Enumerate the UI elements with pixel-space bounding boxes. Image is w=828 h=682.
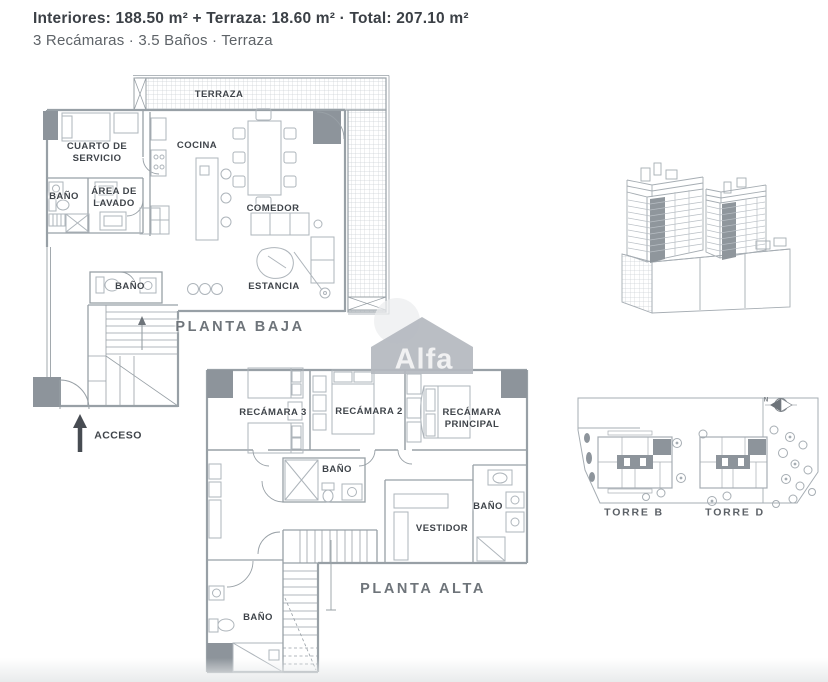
room-label-recamara2: RECÁMARA 2 bbox=[335, 406, 402, 418]
towers-illustration bbox=[622, 163, 790, 313]
north-compass-icon bbox=[765, 399, 797, 412]
torre-b-label: TORRE B bbox=[604, 506, 664, 519]
room-label-bano-powder: BAÑO bbox=[115, 281, 145, 293]
rec2-furniture bbox=[313, 370, 374, 434]
north-label: N bbox=[764, 397, 768, 405]
site-plan bbox=[578, 398, 818, 508]
planta-alta-title: PLANTA ALTA bbox=[360, 580, 486, 598]
floorplan-sheet: Interiores: 188.50 m² + Terraza: 18.60 m… bbox=[0, 0, 828, 682]
pa-stairs bbox=[283, 530, 377, 672]
room-label-bano-lower: BAÑO bbox=[243, 612, 273, 624]
acceso-label: ACCESO bbox=[94, 429, 142, 442]
room-label-cocina: COCINA bbox=[177, 140, 217, 152]
shrubs bbox=[584, 433, 595, 482]
tower-right bbox=[706, 178, 766, 260]
room-label-vestidor: VESTIDOR bbox=[416, 523, 468, 535]
pb-stairs bbox=[88, 305, 178, 406]
room-label-comedor: COMEDOR bbox=[247, 203, 300, 215]
room-label-bano-master: BAÑO bbox=[473, 501, 503, 513]
torre-d-footprint bbox=[700, 437, 767, 488]
planta-baja-title: PLANTA BAJA bbox=[175, 318, 304, 336]
room-label-bano-mid: BAÑO bbox=[322, 464, 352, 476]
master-bath-fixtures bbox=[477, 470, 524, 561]
dining-furniture bbox=[233, 109, 296, 208]
room-label-estancia: ESTANCIA bbox=[248, 281, 299, 293]
hall-closets bbox=[209, 464, 221, 538]
kitchen-fixtures bbox=[140, 118, 231, 240]
room-label-cuarto-servicio: CUARTO DE SERVICIO bbox=[53, 141, 141, 165]
acceso-arrow-icon bbox=[73, 414, 87, 452]
torre-b-footprint bbox=[598, 437, 672, 488]
room-label-recamara-principal: RECÁMARA PRINCIPAL bbox=[425, 407, 520, 431]
bottom-fade bbox=[0, 658, 828, 682]
room-label-terraza: TERRAZA bbox=[195, 89, 244, 101]
torre-d-label: TORRE D bbox=[705, 506, 765, 519]
servicio-furniture bbox=[62, 113, 138, 141]
room-label-recamara3: RECÁMARA 3 bbox=[239, 407, 306, 419]
tower-left bbox=[627, 163, 703, 263]
room-label-area-lavado: ÁREA DE LAVADO bbox=[74, 186, 154, 210]
watermark-brand: Alfa bbox=[395, 344, 454, 377]
